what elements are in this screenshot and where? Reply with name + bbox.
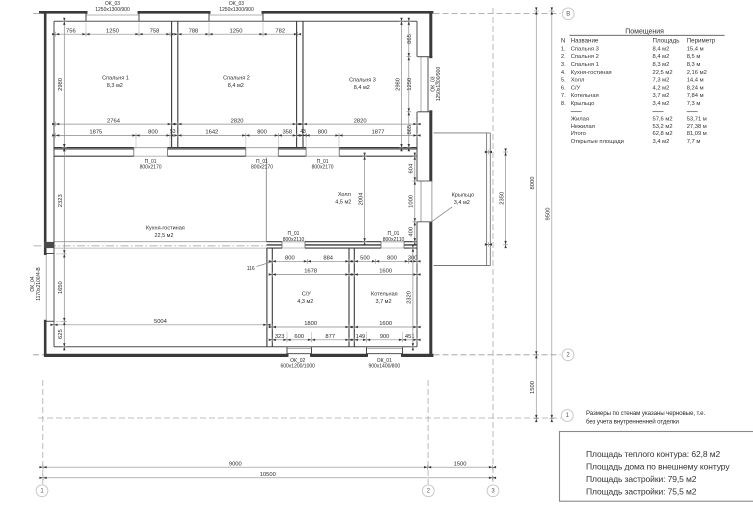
svg-text:Площадь застройки: 79,5 м2: Площадь застройки: 79,5 м2 (586, 474, 697, 484)
svg-text:2820: 2820 (231, 118, 244, 124)
svg-text:Площадь теплого контура: 62,8: Площадь теплого контура: 62,8 м2 (586, 449, 720, 459)
svg-text:Спальня 3: Спальня 3 (349, 78, 376, 84)
svg-text:625: 625 (58, 329, 64, 339)
svg-text:400: 400 (409, 227, 415, 237)
svg-text:81,09 м: 81,09 м (687, 131, 707, 137)
svg-text:Название: Название (571, 38, 599, 45)
svg-text:Спальня 2: Спальня 2 (571, 54, 599, 60)
svg-text:Котельная: Котельная (371, 291, 398, 297)
svg-text:Площадь застройки: 75,5 м2: Площадь застройки: 75,5 м2 (586, 486, 697, 496)
svg-text:Крыльцо: Крыльцо (571, 101, 595, 107)
svg-text:1642: 1642 (205, 130, 218, 136)
svg-text:4,5 м2: 4,5 м2 (335, 199, 351, 205)
svg-text:Спальня 3: Спальня 3 (571, 46, 599, 52)
svg-text:1250: 1250 (407, 78, 413, 91)
svg-text:116: 116 (247, 266, 255, 272)
svg-text:8,3 м2: 8,3 м2 (653, 62, 670, 68)
svg-text:Котельная: Котельная (571, 93, 599, 99)
svg-text:2323: 2323 (58, 194, 64, 207)
svg-text:8,3 м2: 8,3 м2 (107, 83, 123, 89)
svg-text:2320: 2320 (407, 291, 413, 304)
svg-text:14,4 м: 14,4 м (687, 78, 704, 84)
svg-text:1170х2100/4-В: 1170х2100/4-В (36, 267, 42, 301)
svg-text:Открытые площади: Открытые площади (571, 139, 624, 145)
svg-text:Жилая: Жилая (571, 117, 589, 123)
svg-text:604: 604 (409, 163, 415, 173)
svg-text:8,4 м2: 8,4 м2 (653, 46, 670, 52)
svg-text:Холл: Холл (571, 78, 585, 84)
svg-text:Площадь: Площадь (653, 38, 680, 45)
svg-text:1250: 1250 (230, 28, 243, 34)
svg-text:800: 800 (285, 256, 295, 262)
svg-text:865: 865 (407, 34, 413, 44)
svg-text:8,4 м2: 8,4 м2 (653, 54, 670, 60)
svg-text:2980: 2980 (58, 78, 64, 91)
svg-text:1875: 1875 (89, 130, 102, 136)
svg-text:Кухня-гостиная: Кухня-гостиная (571, 70, 612, 76)
svg-text:22,5 м2: 22,5 м2 (653, 70, 673, 76)
svg-text:22,5 м2: 22,5 м2 (154, 233, 173, 239)
svg-text:8.: 8. (561, 101, 566, 107)
svg-text:8,4 м2: 8,4 м2 (354, 85, 370, 91)
svg-text:900: 900 (380, 334, 390, 340)
svg-text:3,7 м2: 3,7 м2 (653, 93, 670, 99)
svg-text:8,3 м: 8,3 м (687, 62, 701, 68)
svg-text:3,4 м2: 3,4 м2 (653, 101, 670, 107)
svg-text:без учета внутренненней отделк: без учета внутренненней отделки (586, 418, 680, 425)
svg-text:877: 877 (325, 334, 335, 340)
svg-text:3,4 м2: 3,4 м2 (653, 139, 670, 145)
svg-text:800х2170: 800х2170 (251, 165, 273, 171)
svg-text:500: 500 (360, 256, 370, 262)
svg-text:7,3 м: 7,3 м (687, 101, 701, 107)
svg-text:2004: 2004 (358, 192, 364, 206)
svg-text:756: 756 (66, 28, 76, 34)
svg-text:5004: 5004 (154, 319, 168, 325)
svg-text:600х1200/1000: 600х1200/1000 (280, 364, 315, 370)
svg-text:Крыльцо: Крыльцо (452, 193, 474, 199)
svg-text:4.: 4. (561, 70, 566, 76)
svg-text:Периметр: Периметр (687, 38, 716, 45)
svg-text:149: 149 (356, 334, 366, 340)
svg-text:800х2170: 800х2170 (312, 165, 334, 171)
svg-text:884: 884 (323, 256, 333, 262)
svg-text:758: 758 (150, 28, 160, 34)
svg-text:3.: 3. (561, 62, 566, 68)
svg-text:Итого: Итого (571, 131, 586, 137)
svg-text:6.: 6. (561, 85, 566, 91)
svg-text:53: 53 (170, 129, 176, 135)
svg-text:43: 43 (300, 129, 306, 135)
svg-text:800х2110: 800х2110 (383, 237, 405, 243)
svg-text:3,4 м2: 3,4 м2 (454, 200, 470, 206)
svg-text:5.: 5. (561, 78, 566, 84)
svg-text:1250х1300/900: 1250х1300/900 (436, 67, 442, 102)
svg-text:Спальня 1: Спальня 1 (102, 76, 129, 82)
svg-text:800х2170: 800х2170 (140, 165, 162, 171)
svg-text:Холл: Холл (338, 192, 351, 198)
svg-text:С/У: С/У (571, 85, 581, 91)
svg-text:57,6 м2: 57,6 м2 (653, 117, 673, 123)
svg-text:1250: 1250 (106, 28, 119, 34)
svg-text:1500: 1500 (530, 381, 536, 394)
svg-text:865: 865 (407, 125, 413, 135)
svg-text:N: N (561, 38, 565, 45)
svg-text:2820: 2820 (354, 118, 367, 124)
svg-text:600: 600 (294, 334, 304, 340)
svg-text:3,7 м2: 3,7 м2 (375, 299, 391, 305)
svg-text:7,3 м2: 7,3 м2 (653, 78, 670, 84)
svg-text:7,84 м: 7,84 м (687, 93, 704, 99)
svg-text:788: 788 (189, 28, 199, 34)
svg-text:2980: 2980 (395, 78, 401, 91)
svg-text:4,2 м2: 4,2 м2 (653, 85, 670, 91)
svg-text:15,4 м: 15,4 м (687, 46, 704, 52)
svg-text:2350: 2350 (499, 192, 505, 205)
svg-text:8,4 м2: 8,4 м2 (228, 83, 244, 89)
svg-text:800: 800 (257, 130, 267, 136)
svg-text:1600: 1600 (379, 269, 392, 275)
svg-text:800: 800 (387, 256, 397, 262)
svg-text:Площадь дома по внешнему конту: Площадь дома по внешнему контуру (586, 461, 730, 471)
svg-text:9500: 9500 (545, 208, 551, 221)
svg-text:9000: 9000 (229, 461, 242, 467)
svg-text:1877: 1877 (372, 130, 385, 136)
svg-text:8000: 8000 (530, 177, 536, 190)
svg-text:1800: 1800 (304, 321, 317, 327)
svg-text:358: 358 (282, 130, 292, 136)
svg-text:В: В (566, 12, 570, 18)
svg-text:1250х1300/900: 1250х1300/900 (95, 7, 130, 13)
svg-text:1000: 1000 (409, 195, 415, 208)
svg-text:1250х1300/900: 1250х1300/900 (219, 7, 254, 13)
svg-text:Спальня 2: Спальня 2 (223, 76, 250, 82)
svg-text:Спальня 1: Спальня 1 (571, 62, 599, 68)
svg-text:27,38 м: 27,38 м (687, 124, 707, 130)
svg-text:62,8 м2: 62,8 м2 (653, 131, 673, 137)
svg-text:Размеры по стенам указаны черн: Размеры по стенам указаны черновые, т.е. (586, 410, 705, 417)
svg-text:1678: 1678 (304, 269, 317, 275)
svg-text:1600: 1600 (379, 321, 392, 327)
svg-text:4,3 м2: 4,3 м2 (297, 299, 313, 305)
svg-text:10500: 10500 (260, 472, 276, 478)
svg-text:2764: 2764 (107, 118, 121, 124)
svg-text:1650: 1650 (58, 281, 64, 294)
svg-text:2.: 2. (561, 54, 566, 60)
svg-text:8,24 м: 8,24 м (687, 85, 704, 91)
svg-text:Нежилая: Нежилая (571, 124, 595, 130)
svg-text:8,5 м: 8,5 м (687, 54, 701, 60)
svg-text:800: 800 (148, 130, 158, 136)
svg-text:Помещения: Помещения (625, 28, 664, 35)
svg-text:323: 323 (275, 334, 285, 340)
svg-text:900х1400/800: 900х1400/800 (368, 364, 400, 370)
svg-text:Кухня-гостиная: Кухня-гостиная (146, 226, 185, 232)
svg-text:7,7 м: 7,7 м (687, 139, 701, 145)
svg-text:53,2 м2: 53,2 м2 (653, 124, 673, 130)
svg-text:800х2110: 800х2110 (283, 237, 305, 243)
svg-text:1.: 1. (561, 46, 566, 52)
svg-text:С/У: С/У (302, 291, 312, 297)
svg-text:800: 800 (318, 130, 328, 136)
svg-text:2,16 м2: 2,16 м2 (687, 70, 707, 76)
svg-text:782: 782 (275, 28, 285, 34)
svg-text:7.: 7. (561, 93, 566, 99)
svg-text:1500: 1500 (454, 461, 467, 467)
svg-text:53,71 м: 53,71 м (687, 117, 707, 123)
